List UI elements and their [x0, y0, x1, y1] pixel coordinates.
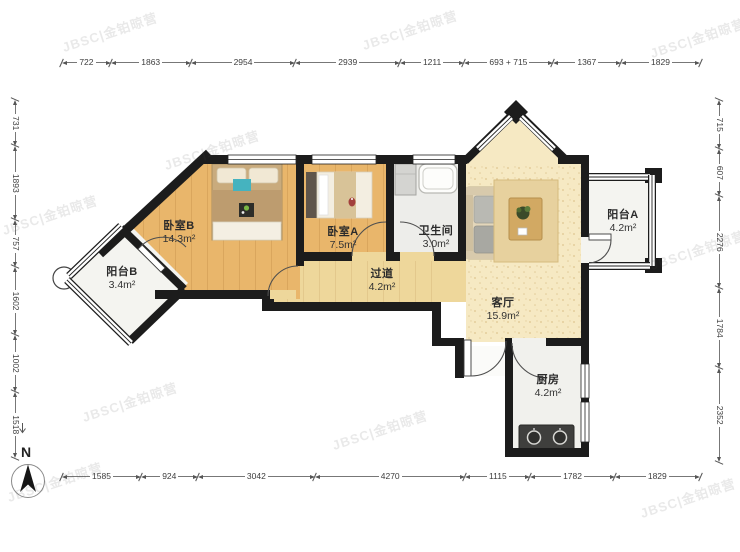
window-bathroom	[413, 155, 455, 164]
dim-value: 1518	[11, 413, 20, 436]
dim-value: 2954	[232, 58, 255, 67]
rug	[494, 180, 558, 262]
dim-value: 1367	[575, 58, 598, 67]
dim-segment-bottom: 1115	[465, 470, 530, 483]
dim-segment-right: 1784	[713, 288, 726, 368]
dim-value: 1602	[11, 290, 20, 313]
dim-segment-left: 1518	[9, 392, 22, 458]
dim-value: 731	[11, 114, 20, 132]
dim-value: 1585	[90, 472, 113, 481]
dim-value: 3042	[245, 472, 268, 481]
dim-segment-top: 2954	[191, 56, 296, 69]
door-leaf-balcony-a	[589, 234, 611, 240]
teal-runner	[233, 179, 251, 191]
dim-value: 607	[715, 164, 724, 182]
arrowhead-right-icon	[695, 475, 700, 479]
dim-segment-bottom: 1829	[615, 470, 700, 483]
window-kitchen-1	[581, 364, 589, 398]
washer-cabinet	[395, 164, 416, 195]
dim-segment-top: 693 + 715	[464, 56, 552, 69]
dim-segment-bottom: 1782	[530, 470, 614, 483]
arrowhead-right-icon	[718, 457, 722, 462]
dim-value: 1782	[561, 472, 584, 481]
dim-value: 924	[160, 472, 178, 481]
dim-value: 757	[11, 235, 20, 253]
north-label: N	[21, 444, 31, 460]
dim-segment-top: 1367	[553, 56, 621, 69]
dim-segment-left: 731	[9, 100, 22, 146]
dim-value: 1829	[646, 472, 669, 481]
wall-divider-bedrooms	[296, 159, 304, 266]
window-kitchen-2	[581, 402, 589, 442]
dim-segment-left: 1002	[9, 335, 22, 391]
arrowhead-right-icon	[695, 61, 700, 65]
dim-segment-right: 715	[713, 100, 726, 149]
dim-value: 2276	[715, 231, 724, 254]
wall-living-left	[458, 155, 466, 261]
floors	[53, 117, 648, 452]
bathtub	[419, 164, 457, 193]
wall-kitchen-bottom	[505, 448, 589, 457]
dim-segment-bottom: 3042	[198, 470, 316, 483]
wall-kitchen-left	[505, 338, 513, 456]
dim-segment-left: 757	[9, 220, 22, 267]
wall-bedroom-b-bottom	[155, 290, 274, 299]
dim-segment-right: 607	[713, 149, 726, 196]
double-bed	[212, 164, 282, 240]
dim-value: 2352	[715, 404, 724, 427]
dim-segment-top: 1211	[400, 56, 464, 69]
stove	[519, 425, 574, 450]
compass-needle-icon	[20, 465, 36, 493]
dim-value: 1893	[11, 172, 20, 195]
dim-value: 1115	[487, 472, 509, 481]
dim-segment-left: 1602	[9, 267, 22, 335]
single-bed	[306, 172, 372, 218]
dim-value: 693 + 715	[487, 58, 529, 67]
dim-segment-left: 1893	[9, 146, 22, 220]
dim-value: 1784	[715, 317, 724, 340]
dim-value: 4270	[379, 472, 402, 481]
floorplan-canvas: 卧室B 14.3m² 卧室A 7.5m² 卫生间 3.0m² 过道 4.2m² …	[0, 0, 740, 552]
dim-segment-right: 2276	[713, 196, 726, 288]
dim-segment-bottom: 4270	[315, 470, 465, 483]
dim-segment-top: 722	[62, 56, 111, 69]
dimension-line-right: 715607227617842352	[713, 100, 726, 462]
arrowhead-right-icon	[14, 453, 18, 458]
door-leaf-entry	[464, 340, 471, 376]
dim-value: 1211	[421, 58, 443, 67]
dim-segment-top: 2939	[295, 56, 400, 69]
dimension-line-left: 7311893757160210021518	[9, 100, 22, 458]
dim-value: 2939	[336, 58, 359, 67]
dim-segment-top: 1863	[111, 56, 191, 69]
wall-divider-bathroom	[386, 159, 394, 261]
dim-value: 1863	[139, 58, 162, 67]
dim-segment-bottom: 1585	[62, 470, 141, 483]
dimension-line-top: 7221863295429391211693 + 71513671829	[62, 56, 700, 69]
dim-value: 715	[715, 116, 724, 134]
dim-value: 722	[77, 58, 95, 67]
window-bedroom-b	[228, 155, 296, 164]
dim-value: 1829	[649, 58, 672, 67]
wall-hallway-bottom	[262, 302, 441, 311]
window-bedroom-a	[312, 155, 376, 164]
dim-value: 1002	[11, 352, 20, 375]
dim-segment-bottom: 924	[141, 470, 198, 483]
balcony-a-floor	[589, 181, 648, 262]
dim-segment-top: 1829	[621, 56, 700, 69]
dim-segment-right: 2352	[713, 368, 726, 462]
dimension-line-bottom: 158592430424270111517821829	[62, 470, 700, 483]
wall-entry-stub	[455, 338, 464, 378]
